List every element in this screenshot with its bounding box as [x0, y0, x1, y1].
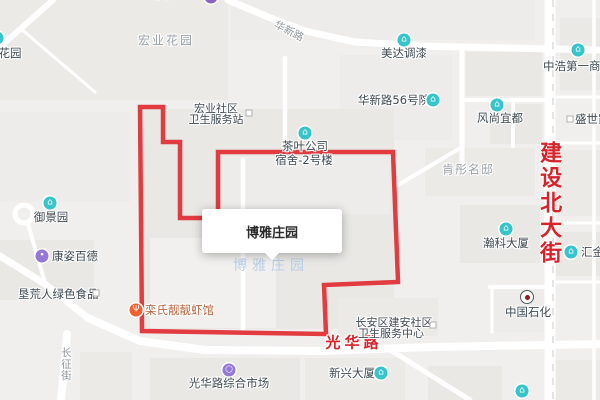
poi-label-guanghua-market[interactable]: 光华路综合市场: [189, 375, 270, 391]
poi-label-sinopec[interactable]: 中国石化: [505, 304, 551, 320]
restaurant-icon[interactable]: Ψ: [130, 304, 143, 317]
brand-store-icon[interactable]: •: [36, 250, 49, 263]
tower-icon[interactable]: ⌂: [375, 367, 388, 380]
jianan-clinic-marker: [430, 322, 437, 329]
area-label-top-partial: 小微企业: [153, 0, 199, 2]
road-label-changzheng: 长征街: [59, 347, 74, 382]
area-label-kentong-mingdi: 肯彤名邸: [442, 161, 494, 178]
poi-label-luanshi-restaurant[interactable]: 栾氏靓靓虾馆: [145, 302, 214, 318]
poi-label-meida-paint[interactable]: 美达调漆: [381, 45, 427, 61]
clinic-marker: [246, 110, 253, 117]
shengshi-marker: [567, 116, 574, 123]
place-popup[interactable]: 博雅庄园: [202, 209, 342, 253]
poi-label-tea-company-2[interactable]: 宿舍-2号楼: [275, 152, 332, 168]
poi-label-kenhuangren[interactable]: 垦荒人绿色食品: [18, 286, 99, 302]
poi-label-zhonghao-mall[interactable]: 中浩第一商城: [543, 58, 600, 74]
popup-pointer: [265, 253, 279, 260]
poi-label-hongye-clinic-2[interactable]: 卫生服务站: [189, 111, 244, 127]
area-label-shengshi: 盛世家: [575, 111, 600, 127]
gas-station-icon[interactable]: [520, 290, 534, 304]
courtyard-icon[interactable]: ⌂: [427, 94, 440, 107]
office-icon[interactable]: ⌂: [565, 246, 578, 259]
area-label-huayuan-partial: 花园: [0, 45, 22, 61]
mall-icon[interactable]: ⌂: [572, 44, 585, 57]
hanke-tower-icon[interactable]: ⌂: [500, 223, 513, 236]
area-label-hongye-huayuan: 宏业花园: [138, 32, 194, 49]
road-label-jianshe-north: 建设北大街: [537, 141, 560, 266]
kenhuangren-marker: [93, 290, 100, 297]
poi-label-hanke-tower[interactable]: 瀚科大厦: [483, 235, 529, 251]
place-popup-title: 博雅庄园: [246, 222, 298, 241]
poi-label-kangzi-baide[interactable]: 康姿百德: [52, 248, 98, 264]
poi-label-jianan-clinic-2[interactable]: 卫生服务中心: [358, 325, 424, 341]
poi-label-fengshang-yidu[interactable]: 风尚宜都: [477, 110, 523, 126]
map-tiles: [0, 0, 600, 400]
poi-label-huijin[interactable]: 汇金大厦: [581, 244, 600, 260]
map-canvas[interactable]: 博雅庄园 宏业花园 肯彤名邸 花园 小微企业 盛世家 华新路 长征街 光华路 建…: [0, 0, 600, 400]
poi-label-huaxin-56[interactable]: 华新路56号院: [358, 92, 430, 108]
garden-icon[interactable]: ⌂: [44, 197, 57, 210]
building-blocks: [0, 0, 600, 400]
poi-label-yujing-garden[interactable]: 御景园: [34, 209, 69, 225]
poi-label-xinxing-tower[interactable]: 新兴大厦: [329, 365, 375, 381]
bottom-edge-icon[interactable]: ⌂: [516, 385, 529, 398]
